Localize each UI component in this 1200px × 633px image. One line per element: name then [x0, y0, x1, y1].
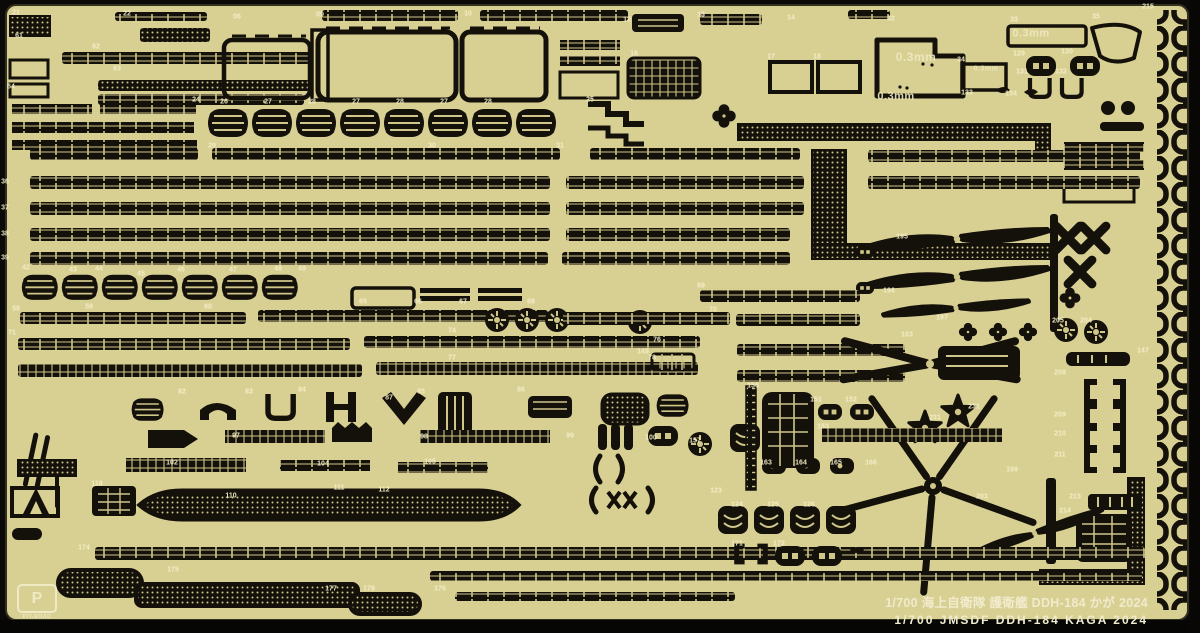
brand-monogram: P — [17, 584, 57, 613]
brand-name: PIT-ROAD — [16, 614, 58, 620]
pe-sheet-artwork — [0, 0, 1200, 633]
product-captions: 1/700 海上自衛隊 護衛艦 DDH-184 かが 2024 1/700 JM… — [885, 592, 1148, 627]
photo-etch-sheet-photo: 2122060910121314323335215616263641617183… — [0, 0, 1200, 633]
caption-japanese: 1/700 海上自衛隊 護衛艦 DDH-184 かが 2024 — [885, 592, 1148, 611]
edge-chain-strip — [1157, 10, 1187, 610]
brand-logo: P PIT-ROAD — [16, 584, 58, 620]
caption-english: 1/700 JMSDF DDH-184 KAGA 2024 — [885, 613, 1148, 627]
